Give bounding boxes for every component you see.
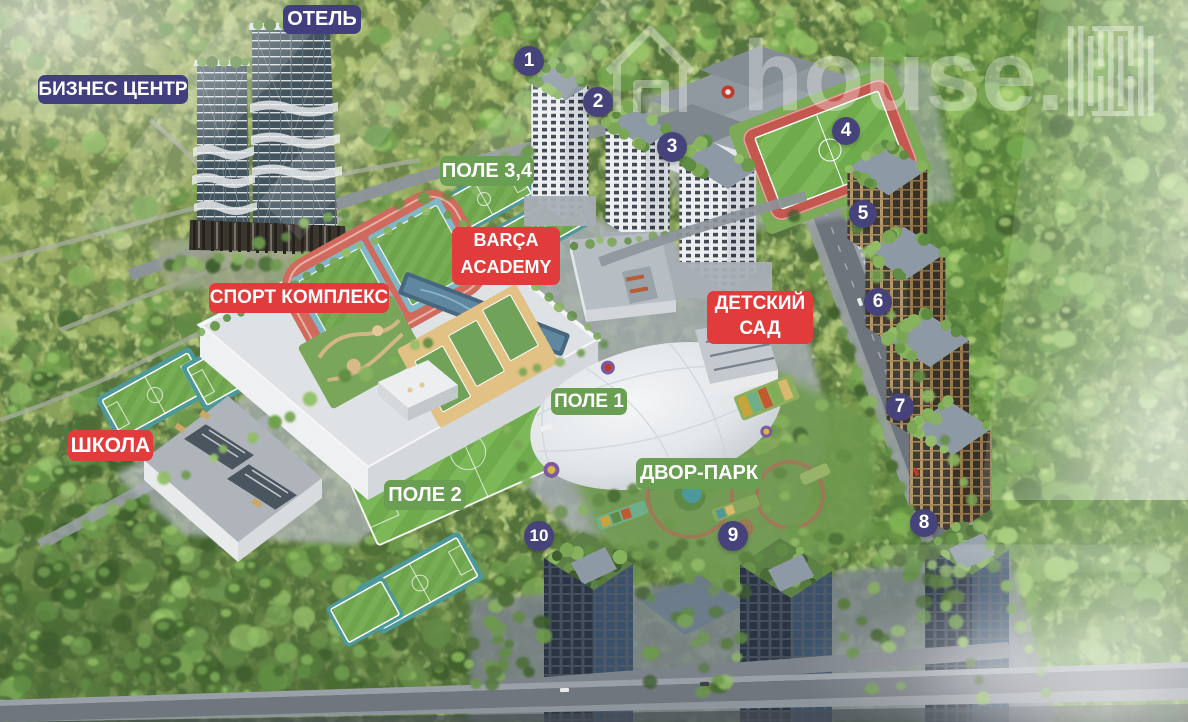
svg-text:house.: house. <box>742 20 1064 132</box>
